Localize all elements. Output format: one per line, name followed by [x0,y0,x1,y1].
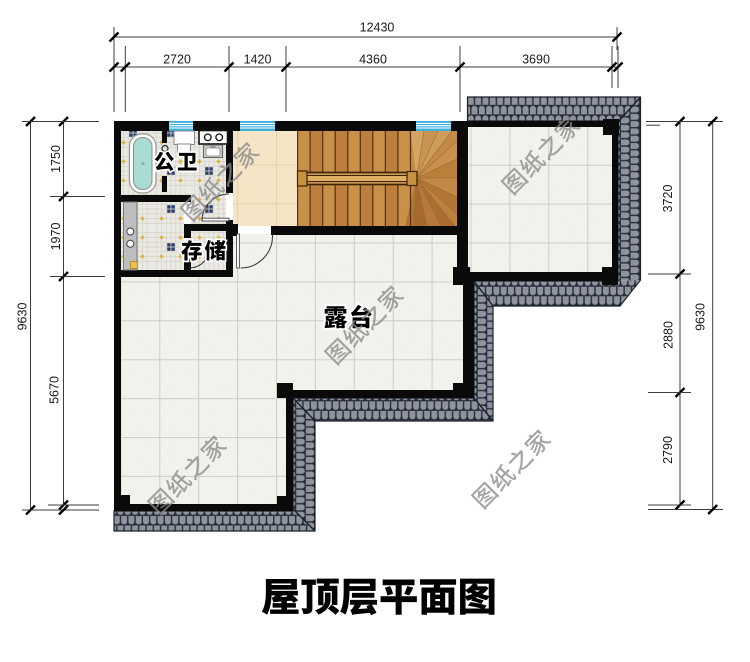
svg-text:4360: 4360 [359,52,387,66]
svg-text:9630: 9630 [15,303,29,331]
svg-text:9630: 9630 [693,303,707,331]
svg-text:1970: 1970 [49,223,63,251]
svg-text:2720: 2720 [163,52,191,66]
svg-text:3690: 3690 [522,52,550,66]
svg-text:2880: 2880 [661,321,675,349]
svg-text:5670: 5670 [47,376,61,404]
svg-text:12430: 12430 [360,20,395,34]
svg-text:1420: 1420 [244,52,272,66]
svg-text:2790: 2790 [661,436,675,464]
svg-text:1750: 1750 [49,145,63,173]
svg-text:3720: 3720 [661,185,675,213]
